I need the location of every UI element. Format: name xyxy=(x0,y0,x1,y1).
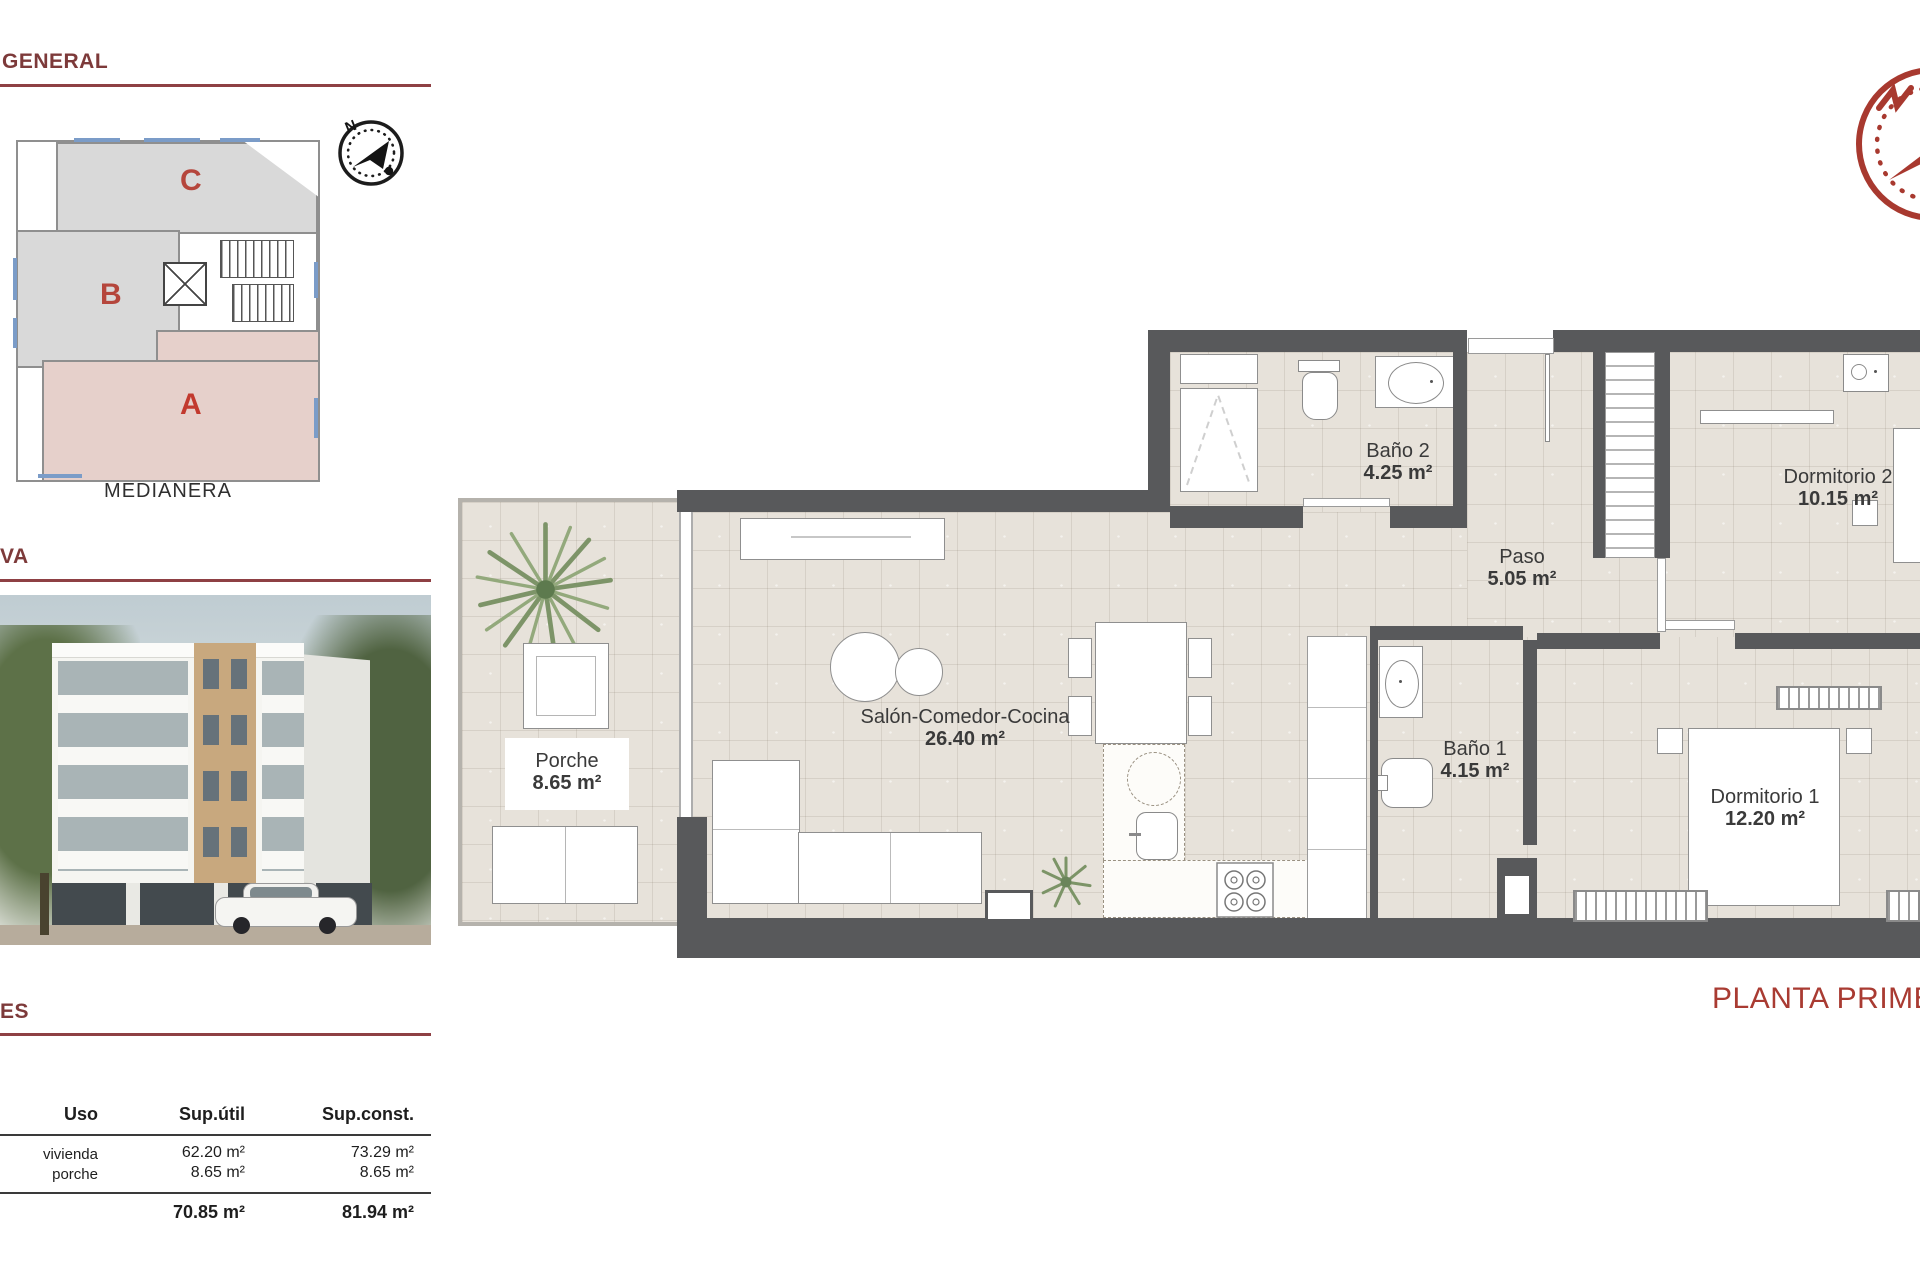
wall xyxy=(1655,352,1670,558)
chair xyxy=(1188,696,1212,736)
wall-fixture-box xyxy=(1843,354,1889,392)
wall xyxy=(1553,330,1920,352)
wall xyxy=(677,490,1170,512)
stairs xyxy=(1605,352,1655,558)
fixture-circle xyxy=(1851,364,1867,380)
sofa-chaise xyxy=(712,760,800,904)
wall-niche-box xyxy=(985,890,1033,922)
room-label-dormitorio1: Dormitorio 1 12.20 m² xyxy=(1690,786,1840,831)
room-label-dormitorio2: Dormitorio 2 10.15 m² xyxy=(1768,466,1908,511)
basin-dot xyxy=(1430,380,1433,383)
plant xyxy=(1036,852,1096,912)
door-leaf-bano2 xyxy=(1303,498,1390,507)
dorm2-shelf xyxy=(1700,410,1834,424)
fridge xyxy=(1127,752,1181,806)
basin-dot xyxy=(1399,680,1402,683)
toilet-tank xyxy=(1298,360,1340,372)
wall xyxy=(1593,352,1605,558)
tall-cabinet-column xyxy=(1307,636,1367,920)
wall xyxy=(1370,626,1378,918)
kitchen-counter-bottom xyxy=(1103,860,1310,918)
window-shutter xyxy=(1573,890,1708,922)
room-label-bano2: Baño 2 4.25 m² xyxy=(1338,440,1458,485)
wall xyxy=(677,918,1920,958)
north-arrow-compass-large xyxy=(1845,56,1920,232)
window-shutter xyxy=(1886,890,1920,922)
sofa xyxy=(798,832,982,904)
wall xyxy=(1537,633,1660,649)
door-leaf xyxy=(1545,354,1550,442)
porch-lounger xyxy=(492,826,638,904)
porch-table-inner xyxy=(536,656,596,716)
entrance-door xyxy=(1468,338,1554,354)
door-leaf-dormitorio1 xyxy=(1660,620,1735,630)
plan-title: PLANTA PRIME xyxy=(1712,982,1920,1016)
room-label-paso: Paso 5.05 m² xyxy=(1462,546,1582,591)
sofa-seam xyxy=(890,833,891,903)
floor-plan: Porche 8.65 m² Salón-Comedor-Cocina 26.4… xyxy=(0,0,1920,1280)
door-leaf-dormitorio2 xyxy=(1657,558,1666,632)
wall xyxy=(1148,330,1170,512)
wall xyxy=(1390,506,1467,528)
lounger-divider xyxy=(565,827,566,903)
porch-glass-divider xyxy=(679,512,693,817)
plan-sheet: { "panel": { "heading_general": "GENERAL… xyxy=(0,0,1920,1280)
entry-shelf xyxy=(1180,354,1258,384)
faucet xyxy=(1129,833,1141,836)
sideboard-line xyxy=(791,536,911,538)
nightstand xyxy=(1657,728,1683,754)
nightstand xyxy=(1846,728,1872,754)
washbasin-bano2 xyxy=(1388,362,1444,404)
entry-wardrobe xyxy=(1180,388,1258,492)
wall xyxy=(1170,506,1303,528)
wall xyxy=(1735,633,1920,649)
vanity-bano1 xyxy=(1379,646,1423,718)
dorm1-wardrobe xyxy=(1776,686,1882,710)
coffee-table-small xyxy=(895,648,943,696)
toilet-bano2 xyxy=(1302,372,1338,420)
coffee-table-large xyxy=(830,632,900,702)
wall xyxy=(1148,330,1467,352)
wall-niche xyxy=(1505,876,1529,914)
wall xyxy=(677,817,707,918)
room-label-salon: Salón-Comedor-Cocina 26.40 m² xyxy=(845,706,1085,751)
room-label-porche: Porche 8.65 m² xyxy=(505,750,629,795)
chair xyxy=(1068,638,1092,678)
cooktop xyxy=(1216,862,1274,918)
vanity-bano2 xyxy=(1375,356,1455,408)
room-label-bano1: Baño 1 4.15 m² xyxy=(1415,738,1535,783)
chair xyxy=(1188,638,1212,678)
fixture-dot xyxy=(1874,370,1877,373)
sofa-seam xyxy=(713,829,799,830)
kitchen-sink xyxy=(1136,812,1178,860)
dining-table xyxy=(1095,622,1187,744)
porch-table xyxy=(523,643,609,729)
wall xyxy=(1370,626,1523,640)
sideboard xyxy=(740,518,945,560)
washbasin-bano1 xyxy=(1385,660,1419,708)
